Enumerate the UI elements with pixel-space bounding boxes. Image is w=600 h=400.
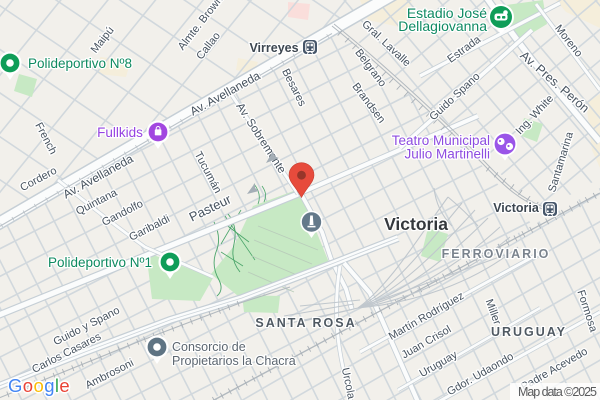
svg-text:Julio Martinelli: Julio Martinelli <box>404 147 490 162</box>
svg-text:URUGUAY: URUGUAY <box>491 325 567 339</box>
svg-text:Polideportivo Nº8: Polideportivo Nº8 <box>28 56 132 71</box>
svg-text:Propietarios la Chacra: Propietarios la Chacra <box>172 354 296 368</box>
svg-text:Dellagiovanna: Dellagiovanna <box>398 18 487 34</box>
svg-text:Google: Google <box>8 375 70 396</box>
svg-text:Fullkids: Fullkids <box>97 125 143 140</box>
svg-text:SANTA ROSA: SANTA ROSA <box>255 316 356 330</box>
svg-text:Victoria: Victoria <box>384 214 448 234</box>
svg-text:Victoria: Victoria <box>493 201 540 215</box>
svg-text:Consorcio de: Consorcio de <box>172 340 246 354</box>
svg-text:Polideportivo Nº1: Polideportivo Nº1 <box>48 255 152 270</box>
svg-text:Virreyes: Virreyes <box>249 41 298 55</box>
svg-text:Map data ©2025: Map data ©2025 <box>518 385 597 399</box>
svg-text:FERROVIARIO: FERROVIARIO <box>442 247 551 261</box>
